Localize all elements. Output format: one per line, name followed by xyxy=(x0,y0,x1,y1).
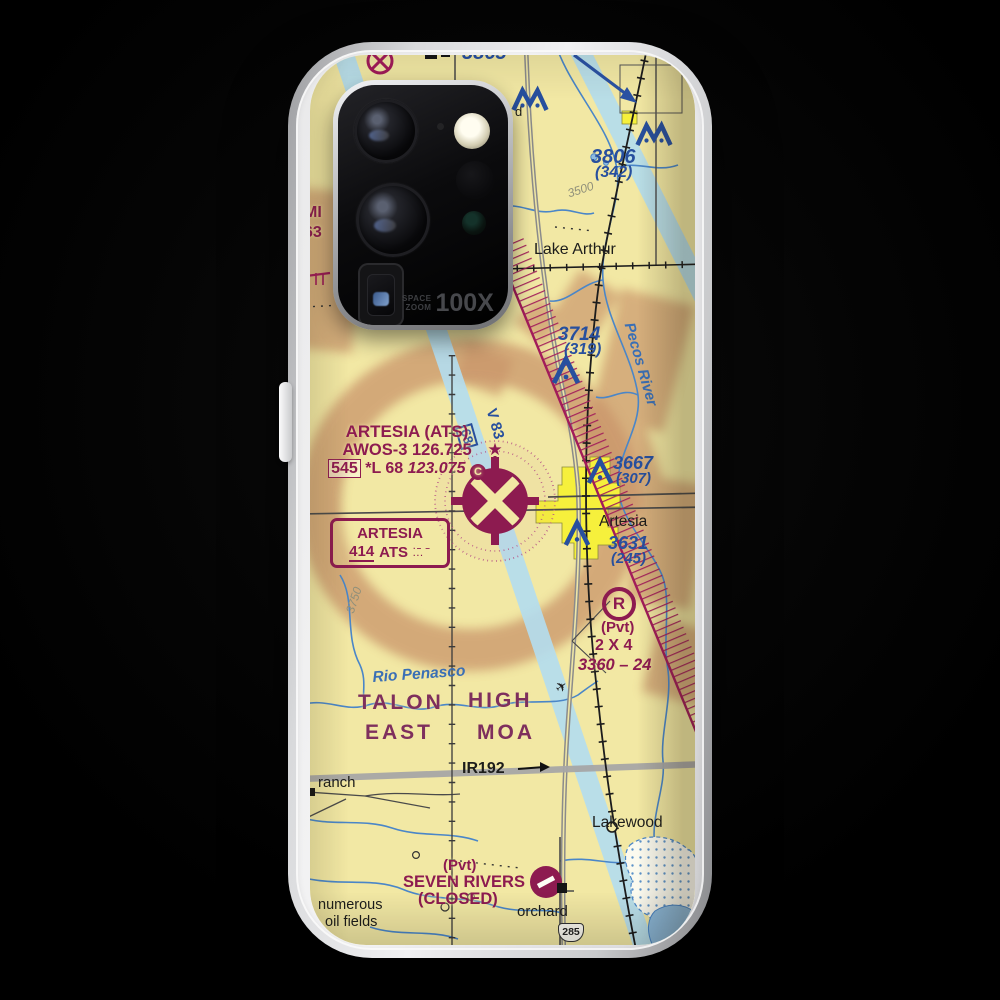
zoom-text: ZOOM xyxy=(402,304,431,313)
moa-label-high: HIGH xyxy=(468,690,533,711)
ndb-ident-box: ARTESIA 414 ATS ·– – ··· xyxy=(330,518,450,568)
mic-hole xyxy=(437,123,444,130)
river-label-pecos: Pecos River xyxy=(622,321,660,408)
phone-case: ★ xyxy=(288,42,712,958)
obstacle-elev-3865: 3865 xyxy=(462,55,507,63)
obstacle-agl-3806: (342) xyxy=(595,165,632,181)
oil-fields-label-1: numerous xyxy=(318,898,382,913)
moa-label-east: EAST xyxy=(365,722,433,743)
moa-label-moa: MOA xyxy=(477,722,535,743)
periscope-glint xyxy=(373,292,389,306)
wide-lens xyxy=(356,183,430,257)
zoom-value-text: 100X xyxy=(435,289,493,318)
ndb-ident: ATS xyxy=(379,544,408,561)
airport-data-block: ARTESIA (ATS) AWOS-3 126.725 545 *L 68 1… xyxy=(312,423,502,480)
airport-awos-line: AWOS-3 126.725 xyxy=(312,442,502,459)
depth-sensor xyxy=(456,161,494,199)
airport-name-line: ARTESIA (ATS) xyxy=(312,423,502,440)
us-285-highway-shield: 285 xyxy=(558,923,584,942)
moa-label-talon: TALON xyxy=(358,692,444,713)
airplane-icon: ✈ xyxy=(553,678,571,696)
ctaf-circle-c-icon: C xyxy=(470,464,486,480)
obstacle-agl-3714: (319) xyxy=(564,342,601,358)
pvt-airport-data: 3360 – 24 xyxy=(578,657,651,674)
seven-rivers-pvt: (Pvt) xyxy=(443,858,476,873)
river-label-rio-penasco: Rio Penasco xyxy=(372,664,466,686)
ndb-name: ARTESIA xyxy=(333,525,447,542)
product-photo: ★ xyxy=(0,0,1000,1000)
edge-label-mi: MI xyxy=(310,205,322,221)
pvt-label: (Pvt) xyxy=(601,620,634,635)
camera-branding: SPACE ZOOM 100X xyxy=(402,289,494,318)
ultrawide-lens xyxy=(354,99,418,163)
seven-rivers-name: SEVEN RIVERS xyxy=(403,874,525,891)
airport-elevation: 545 xyxy=(328,459,361,478)
camera-module: SPACE ZOOM 100X xyxy=(333,80,513,330)
laser-af-sensor xyxy=(462,211,486,235)
phone-side-button xyxy=(279,382,292,462)
private-airport-r-icon: R xyxy=(602,587,636,621)
periscope-aperture xyxy=(367,274,395,316)
pvt-airport-name-2x4: 2 X 4 xyxy=(595,638,632,654)
seven-rivers-closed: (CLOSED) xyxy=(418,891,498,908)
flash-led xyxy=(454,113,490,149)
morse-row-2: ··· xyxy=(413,551,424,560)
town-label-lake-arthur: Lake Arthur xyxy=(534,242,616,258)
airport-elev-line: 545 *L 68 123.075 C xyxy=(312,461,502,480)
edge-label-63: 63 xyxy=(310,225,322,241)
contour-label-3750: 3750 xyxy=(344,586,364,615)
place-label-orchard: orchard xyxy=(517,904,568,919)
obstacle-agl-3667: (307) xyxy=(616,471,651,486)
camera-module-face: SPACE ZOOM 100X xyxy=(338,85,508,325)
mtr-label-ir192: IR192 xyxy=(462,761,505,777)
partial-word-d: d xyxy=(515,105,522,118)
ndb-frequency: 414 xyxy=(349,543,374,562)
airport-runway-info: *L 68 xyxy=(365,460,403,477)
periscope-zoom-lens xyxy=(358,263,404,325)
town-label-lakewood: Lakewood xyxy=(592,815,663,831)
place-label-ranch: ranch xyxy=(318,775,356,790)
airport-ctaf: 123.075 xyxy=(408,460,466,477)
town-label-artesia: Artesia xyxy=(599,514,647,530)
ndb-morse-code: ·– – ··· xyxy=(413,545,431,559)
space-zoom-text: SPACE ZOOM xyxy=(402,295,431,313)
oil-fields-label-2: oil fields xyxy=(325,915,377,930)
obstacle-agl-3631: (245) xyxy=(611,551,646,566)
contour-label-3500: 3500 xyxy=(566,180,595,200)
